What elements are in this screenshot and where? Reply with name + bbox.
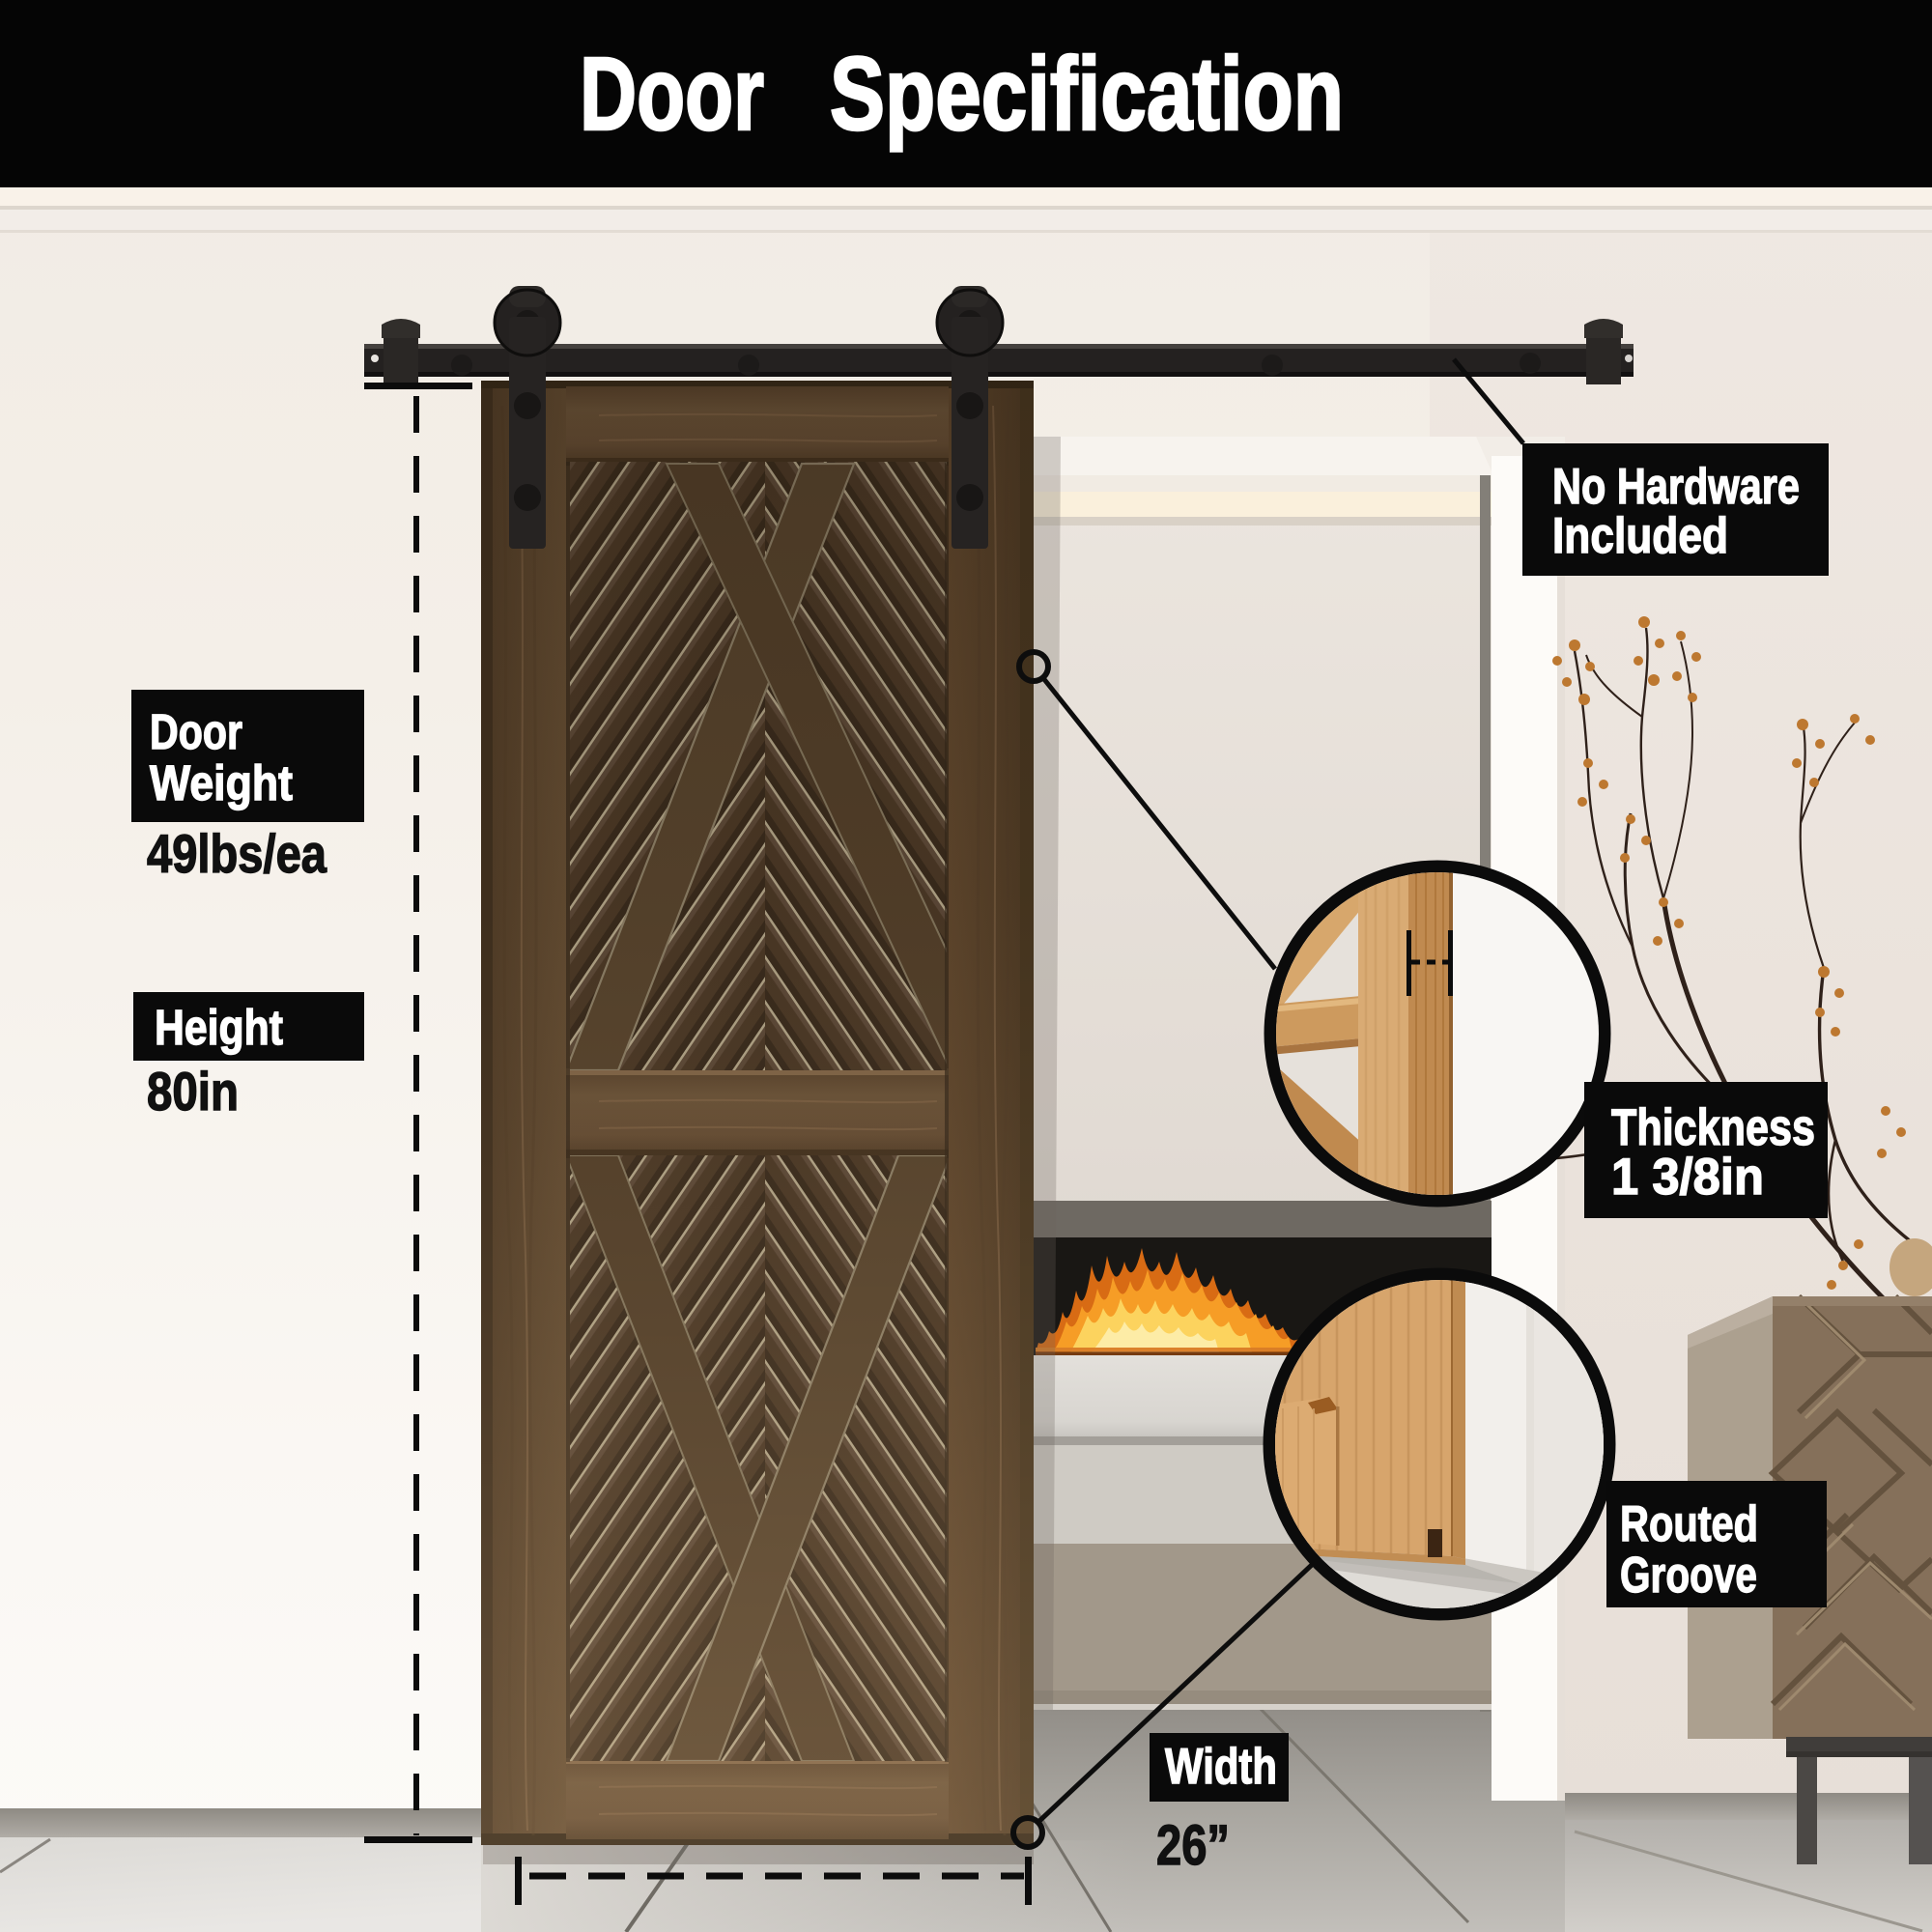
svg-text:Included: Included bbox=[1552, 508, 1728, 564]
svg-text:80in: 80in bbox=[147, 1061, 239, 1122]
svg-text:Width: Width bbox=[1165, 1739, 1277, 1795]
svg-text:Specification: Specification bbox=[830, 35, 1344, 152]
svg-text:Groove: Groove bbox=[1620, 1548, 1757, 1604]
svg-text:49lbs/ea: 49lbs/ea bbox=[147, 823, 327, 884]
svg-text:26”: 26” bbox=[1156, 1814, 1230, 1877]
svg-text:Weight: Weight bbox=[150, 755, 293, 810]
svg-text:Height: Height bbox=[155, 1000, 283, 1055]
svg-text:Door: Door bbox=[150, 704, 242, 759]
svg-text:No Hardware: No Hardware bbox=[1552, 459, 1800, 515]
svg-text:1 3/8in: 1 3/8in bbox=[1611, 1149, 1764, 1206]
svg-text:Door: Door bbox=[580, 35, 764, 152]
svg-text:Routed: Routed bbox=[1620, 1496, 1758, 1552]
